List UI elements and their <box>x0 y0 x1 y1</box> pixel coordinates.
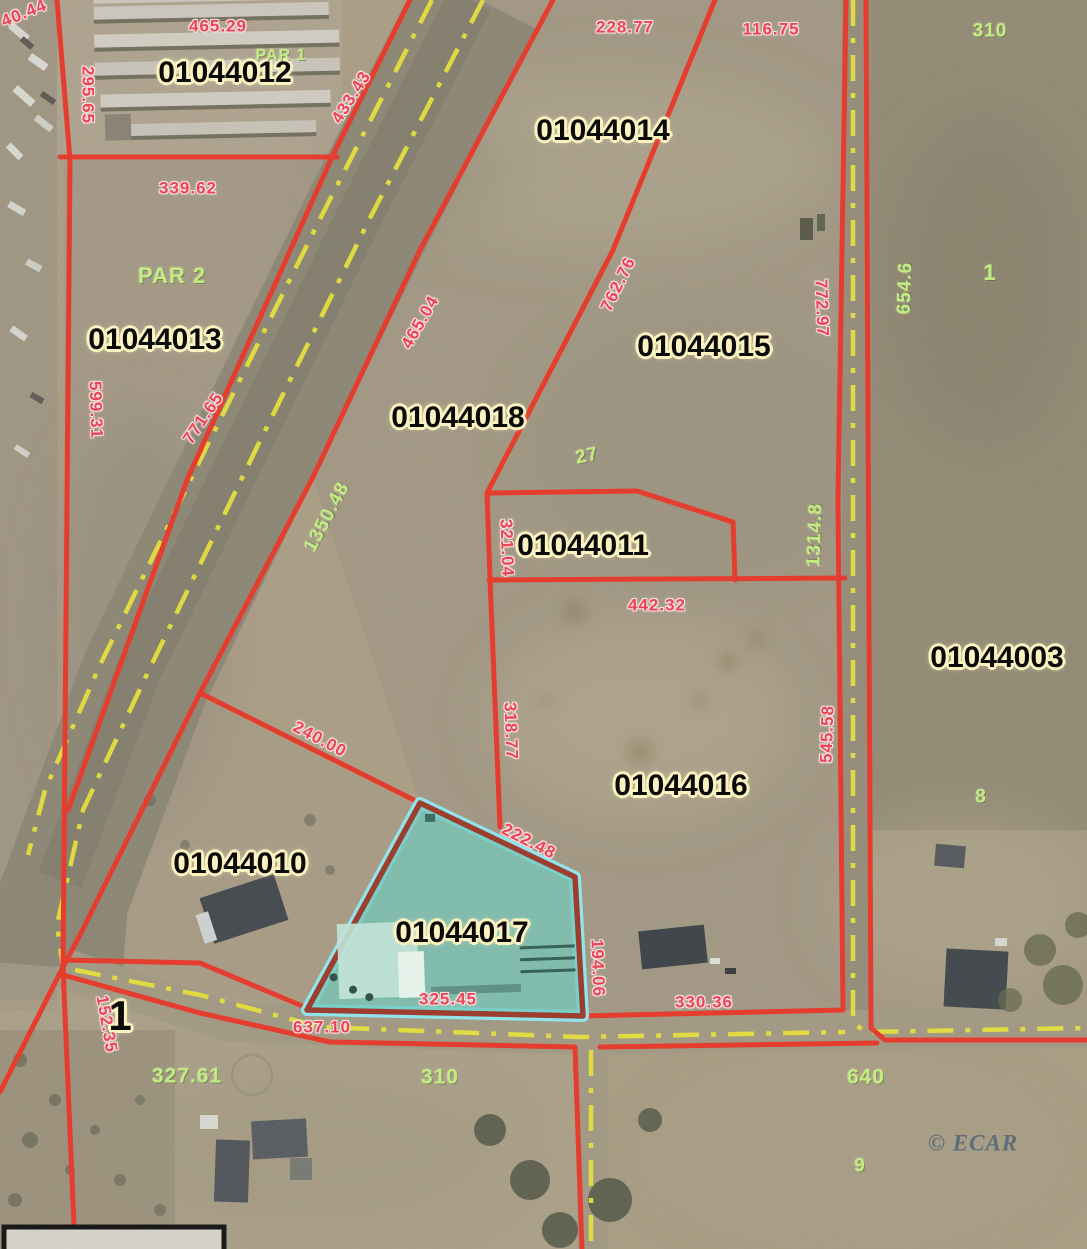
parcel-label-01044012[interactable]: 01044012 <box>158 58 291 88</box>
parcel-label-01044010[interactable]: 01044010 <box>173 849 306 879</box>
parcel-label-01044011[interactable]: 01044011 <box>517 531 649 561</box>
parcel-map-canvas[interactable]: 0104401201044014010440130104401501044018… <box>0 0 1087 1249</box>
parcel-label-01044013[interactable]: 01044013 <box>88 325 221 355</box>
parcel-label-01044016[interactable]: 01044016 <box>614 771 747 801</box>
photo-grain <box>0 0 1087 1249</box>
parcel-label-01044017[interactable]: 01044017 <box>395 918 528 948</box>
aerial-basemap <box>0 0 1087 1249</box>
parcel-label-01044015[interactable]: 01044015 <box>637 332 770 362</box>
parcel-label-01044003[interactable]: 01044003 <box>930 643 1063 673</box>
parcel-label-01044014[interactable]: 01044014 <box>536 116 669 146</box>
parcel-label-01044018[interactable]: 01044018 <box>391 403 524 433</box>
parcel-label-1[interactable]: 1 <box>108 995 131 1037</box>
